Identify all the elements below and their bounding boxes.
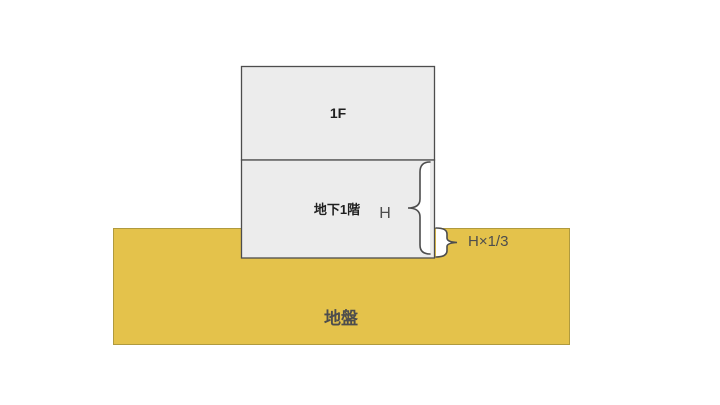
building-embedment-diagram: 1F 地下1階 H H×1/3 地盤 — [0, 0, 720, 405]
embedment-depth-label: H×1/3 — [468, 233, 508, 250]
first-floor-label: 1F — [330, 105, 347, 121]
basement-height-label: H — [379, 205, 391, 222]
basement-label: 地下1階 — [314, 202, 360, 217]
diagram-canvas: 1F 地下1階 H H×1/3 地盤 — [0, 0, 720, 405]
ground-label: 地盤 — [324, 308, 359, 328]
